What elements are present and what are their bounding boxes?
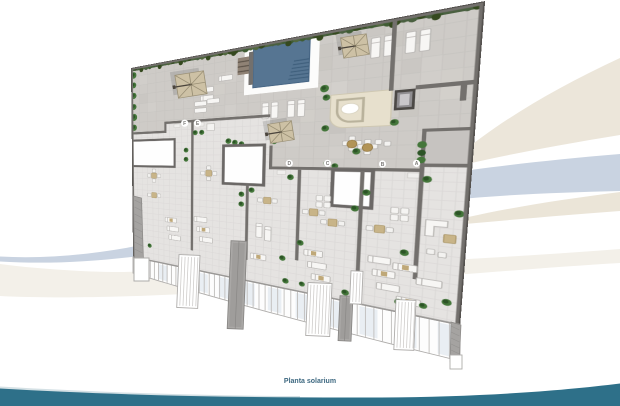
svg-text:D: D	[287, 161, 291, 167]
svg-text:A: A	[415, 161, 419, 167]
svg-text:F: F	[183, 121, 186, 127]
svg-text:B: B	[381, 162, 385, 168]
svg-text:C: C	[326, 161, 330, 167]
